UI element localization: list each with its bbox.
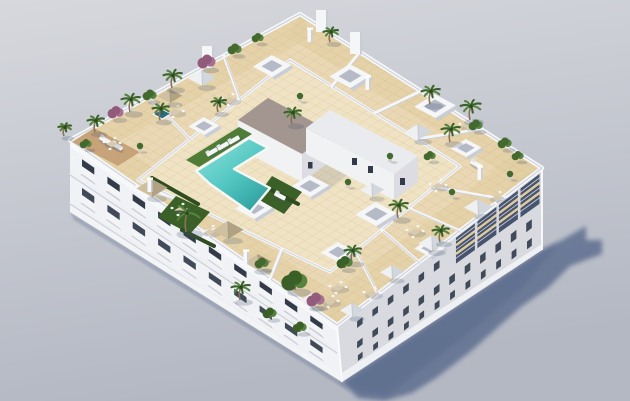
- foliage: [341, 256, 350, 265]
- parasol-shadow: [198, 85, 216, 91]
- foliage: [231, 44, 239, 52]
- chair: [332, 295, 335, 297]
- wall-pillar-cap: [147, 178, 153, 180]
- plant-shadow: [233, 54, 246, 58]
- plant-shadow: [62, 136, 75, 140]
- foliage: [311, 293, 321, 303]
- palm-crown: [185, 211, 189, 215]
- pot-foliage: [449, 189, 455, 195]
- pot-foliage: [345, 179, 351, 185]
- chair: [337, 300, 340, 302]
- palm-crown: [129, 98, 133, 102]
- plant-shadow: [235, 299, 253, 305]
- palm-crown: [239, 286, 243, 290]
- chair: [207, 236, 210, 238]
- aerial-building-render: [0, 0, 630, 401]
- parasol-shadow: [147, 196, 167, 203]
- palm-crown: [449, 128, 453, 132]
- foliage: [501, 138, 509, 146]
- loggia-pier: [496, 204, 499, 236]
- wall-pillar-shade: [151, 179, 153, 192]
- wall-pillar-shade: [481, 167, 483, 180]
- plant-shadow: [167, 87, 185, 93]
- plant-shadow: [156, 120, 172, 126]
- wall-pillar-shade: [311, 29, 313, 42]
- parasol-shadow: [349, 316, 364, 321]
- plant-shadow: [429, 161, 440, 165]
- plant-shadow: [288, 124, 304, 130]
- chair: [429, 183, 432, 185]
- parasol-shadow: [389, 278, 404, 283]
- plant-shadow: [91, 132, 107, 138]
- chair: [340, 281, 343, 283]
- foliage: [288, 271, 302, 285]
- core-window: [308, 162, 313, 169]
- chair: [201, 229, 204, 231]
- parasol-shadow: [414, 139, 432, 145]
- plant-shadow: [113, 118, 127, 123]
- foliage: [112, 106, 121, 115]
- plant-shadow: [393, 217, 411, 223]
- foliage: [296, 322, 304, 330]
- plant-shadow: [445, 141, 463, 147]
- chair: [369, 298, 372, 300]
- palm-crown: [171, 74, 175, 78]
- chair: [227, 104, 230, 106]
- plant-shadow: [268, 318, 281, 322]
- pot-foliage: [297, 93, 303, 99]
- chair: [374, 287, 377, 289]
- chair: [417, 225, 420, 227]
- chair: [103, 141, 106, 143]
- foliage: [427, 151, 434, 158]
- core-wing-window: [400, 178, 405, 185]
- chair: [329, 285, 332, 287]
- chair: [422, 230, 425, 232]
- chair: [109, 148, 112, 150]
- chair: [363, 291, 366, 293]
- foliage: [83, 139, 90, 146]
- parasol-shadow: [223, 238, 243, 245]
- foliage: [146, 90, 154, 98]
- chair: [435, 190, 438, 192]
- pot-foliage: [507, 171, 513, 177]
- palm-crown: [397, 204, 401, 208]
- parasol-shadow: [369, 196, 384, 201]
- chair: [237, 98, 240, 100]
- plant-shadow: [425, 103, 443, 109]
- foliage: [258, 258, 266, 266]
- foliage: [202, 55, 212, 65]
- plant-shadow: [260, 268, 273, 272]
- core-wing-window: [368, 166, 373, 173]
- plant-shadow: [517, 161, 528, 165]
- palm-crown: [63, 125, 67, 129]
- foliage: [255, 33, 262, 40]
- plant-shadow: [215, 112, 229, 117]
- foliage: [266, 308, 274, 316]
- plant-shadow: [257, 43, 268, 47]
- plant-shadow: [503, 148, 516, 152]
- chair: [172, 116, 175, 118]
- wall-pillar-cap: [307, 28, 313, 30]
- chair: [488, 195, 491, 197]
- plant-shadow: [436, 242, 452, 248]
- plant-shadow: [148, 100, 161, 104]
- chair: [379, 292, 382, 294]
- plant-shadow: [177, 230, 204, 240]
- wall-pillar-cap: [365, 76, 371, 78]
- render-viewport: [0, 0, 630, 401]
- plant-shadow: [312, 306, 328, 312]
- plant-shadow: [327, 42, 341, 47]
- loggia-pier: [453, 237, 456, 267]
- palm-crown: [429, 90, 433, 94]
- palm-crown: [469, 104, 473, 108]
- parasol-shadow: [474, 214, 492, 220]
- palm-crown: [439, 229, 443, 233]
- chair: [445, 184, 448, 186]
- privacy-wall-shade: [360, 32, 362, 54]
- chair: [504, 196, 507, 198]
- palm-crown: [291, 111, 295, 115]
- wall-pillar-shade: [369, 77, 371, 90]
- loggia-pier: [475, 221, 478, 252]
- plant-shadow: [85, 149, 96, 153]
- palm-crown: [329, 30, 333, 34]
- chair: [412, 236, 415, 238]
- plant-shadow: [474, 130, 487, 134]
- pot-foliage: [387, 153, 393, 159]
- chair: [440, 179, 443, 181]
- chair: [499, 191, 502, 193]
- chair: [182, 203, 185, 205]
- chair: [335, 292, 338, 294]
- loggia-pier: [518, 188, 521, 221]
- palm-crown: [351, 249, 355, 253]
- chair: [212, 225, 215, 227]
- chair: [232, 93, 235, 95]
- chair: [114, 137, 117, 139]
- chair: [177, 214, 180, 216]
- foliage: [515, 151, 522, 158]
- plant-shadow: [342, 268, 356, 273]
- pot-foliage: [137, 143, 143, 149]
- chair: [182, 110, 185, 112]
- plant-shadow: [125, 111, 143, 117]
- palm-crown: [217, 100, 221, 104]
- chair: [171, 207, 174, 209]
- parasol-shadow: [428, 250, 446, 256]
- wall-pillar-cap: [477, 166, 483, 168]
- foliage: [472, 120, 480, 128]
- chair: [494, 202, 497, 204]
- wall-pillar-shade: [247, 251, 249, 264]
- core-wing-window: [352, 158, 357, 165]
- chair: [406, 229, 409, 231]
- palm-crown: [159, 107, 163, 111]
- plant-shadow: [298, 332, 311, 336]
- plant-shadow: [203, 68, 219, 74]
- chair: [459, 123, 462, 125]
- chair: [465, 130, 468, 132]
- wall-pillar-cap: [243, 250, 249, 252]
- chair: [119, 142, 122, 144]
- palm-crown: [94, 119, 98, 123]
- chair: [345, 286, 348, 288]
